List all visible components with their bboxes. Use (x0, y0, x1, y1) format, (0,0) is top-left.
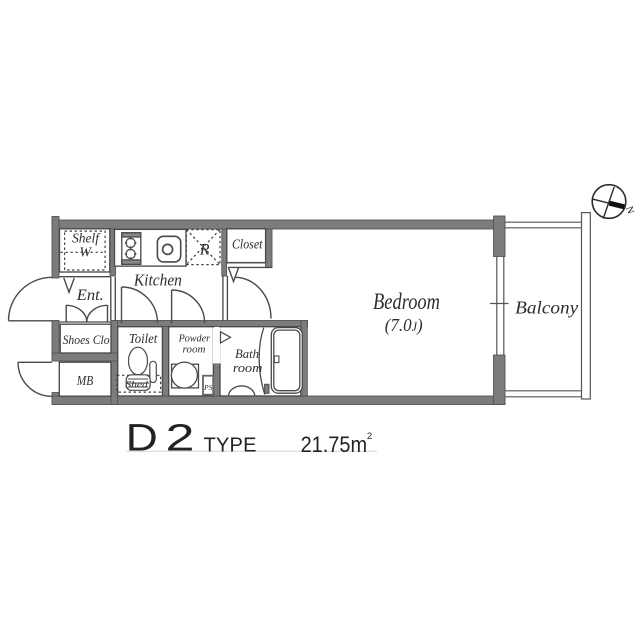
svg-text:Kitchen: Kitchen (133, 271, 182, 290)
svg-text:Shelf: Shelf (72, 231, 101, 246)
svg-text:TYPE: TYPE (204, 435, 257, 457)
svg-text:Bedroom: Bedroom (373, 289, 440, 314)
svg-text:Ent.: Ent. (76, 287, 104, 304)
svg-text:2: 2 (367, 431, 372, 442)
svg-text:21.75m: 21.75m (301, 432, 368, 457)
svg-text:Powder: Powder (178, 334, 211, 345)
svg-text:R: R (199, 242, 210, 259)
svg-text:Shoes Clo: Shoes Clo (63, 332, 110, 347)
svg-text:MB: MB (76, 374, 94, 389)
svg-text:W: W (79, 246, 92, 261)
svg-text:Bath: Bath (235, 347, 259, 361)
svg-text:PS: PS (203, 383, 213, 392)
svg-text:Shed: Shed (125, 381, 148, 391)
svg-text:room: room (233, 361, 263, 375)
svg-text:Toilet: Toilet (129, 332, 159, 347)
svg-text:Closet: Closet (232, 238, 263, 253)
svg-text:room: room (183, 344, 206, 355)
svg-text:(7.0J): (7.0J) (385, 315, 423, 335)
svg-text:D: D (126, 417, 158, 459)
svg-text:Balcony: Balcony (515, 298, 578, 318)
svg-text:2: 2 (166, 417, 195, 459)
